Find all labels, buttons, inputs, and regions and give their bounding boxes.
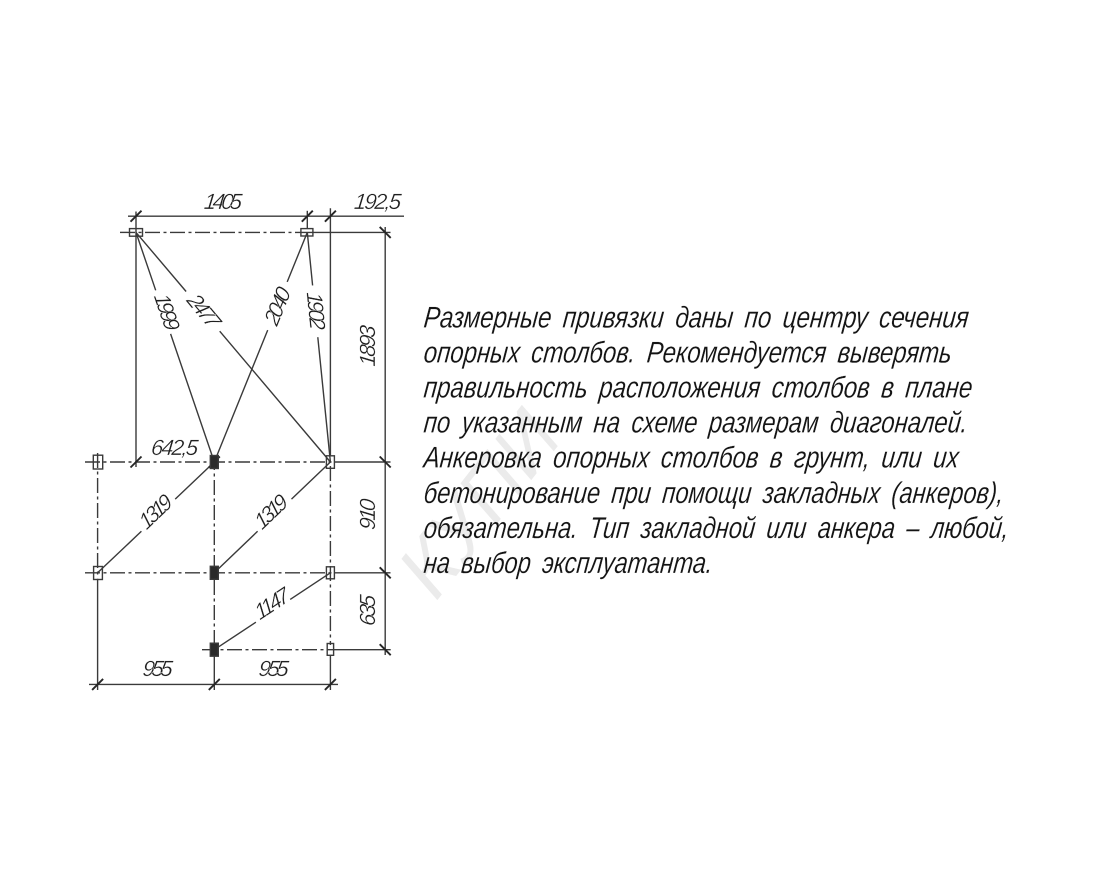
svg-text:1902: 1902 — [301, 292, 330, 330]
svg-text:на выбор эксплуатанта.: на выбор эксплуатанта. — [422, 545, 714, 579]
svg-text:192,5: 192,5 — [353, 189, 403, 214]
svg-text:Размерные привязки даны по цен: Размерные привязки даны по центру сечени… — [422, 300, 971, 334]
svg-text:бетонирование при помощи закла: бетонирование при помощи закладных (анке… — [422, 475, 1005, 509]
svg-text:Анкеровка опорных столбов в гр: Анкеровка опорных столбов в грунт, или и… — [421, 440, 962, 474]
svg-text:955: 955 — [141, 656, 174, 681]
svg-text:1999: 1999 — [149, 291, 186, 333]
svg-text:642,5: 642,5 — [150, 435, 200, 460]
svg-text:1319: 1319 — [250, 488, 293, 534]
svg-text:1893: 1893 — [355, 323, 380, 367]
svg-text:1319: 1319 — [134, 488, 177, 534]
svg-text:1147: 1147 — [250, 582, 294, 626]
svg-text:910: 910 — [355, 497, 380, 531]
svg-text:635: 635 — [355, 593, 380, 627]
svg-text:2040: 2040 — [259, 282, 296, 331]
svg-text:по указанным на схеме размерам: по указанным на схеме размерам диагонале… — [422, 405, 969, 439]
svg-text:1405: 1405 — [203, 189, 244, 214]
svg-text:955: 955 — [257, 656, 290, 681]
svg-text:2477: 2477 — [181, 289, 227, 333]
svg-text:обязательна. Тип закладной или: обязательна. Тип закладной или анкера – … — [422, 510, 1010, 544]
svg-text:опорных столбов. Рекомендуется: опорных столбов. Рекомендуется выверять — [422, 335, 953, 369]
svg-text:правильность расположения стол: правильность расположения столбов в план… — [422, 370, 974, 404]
